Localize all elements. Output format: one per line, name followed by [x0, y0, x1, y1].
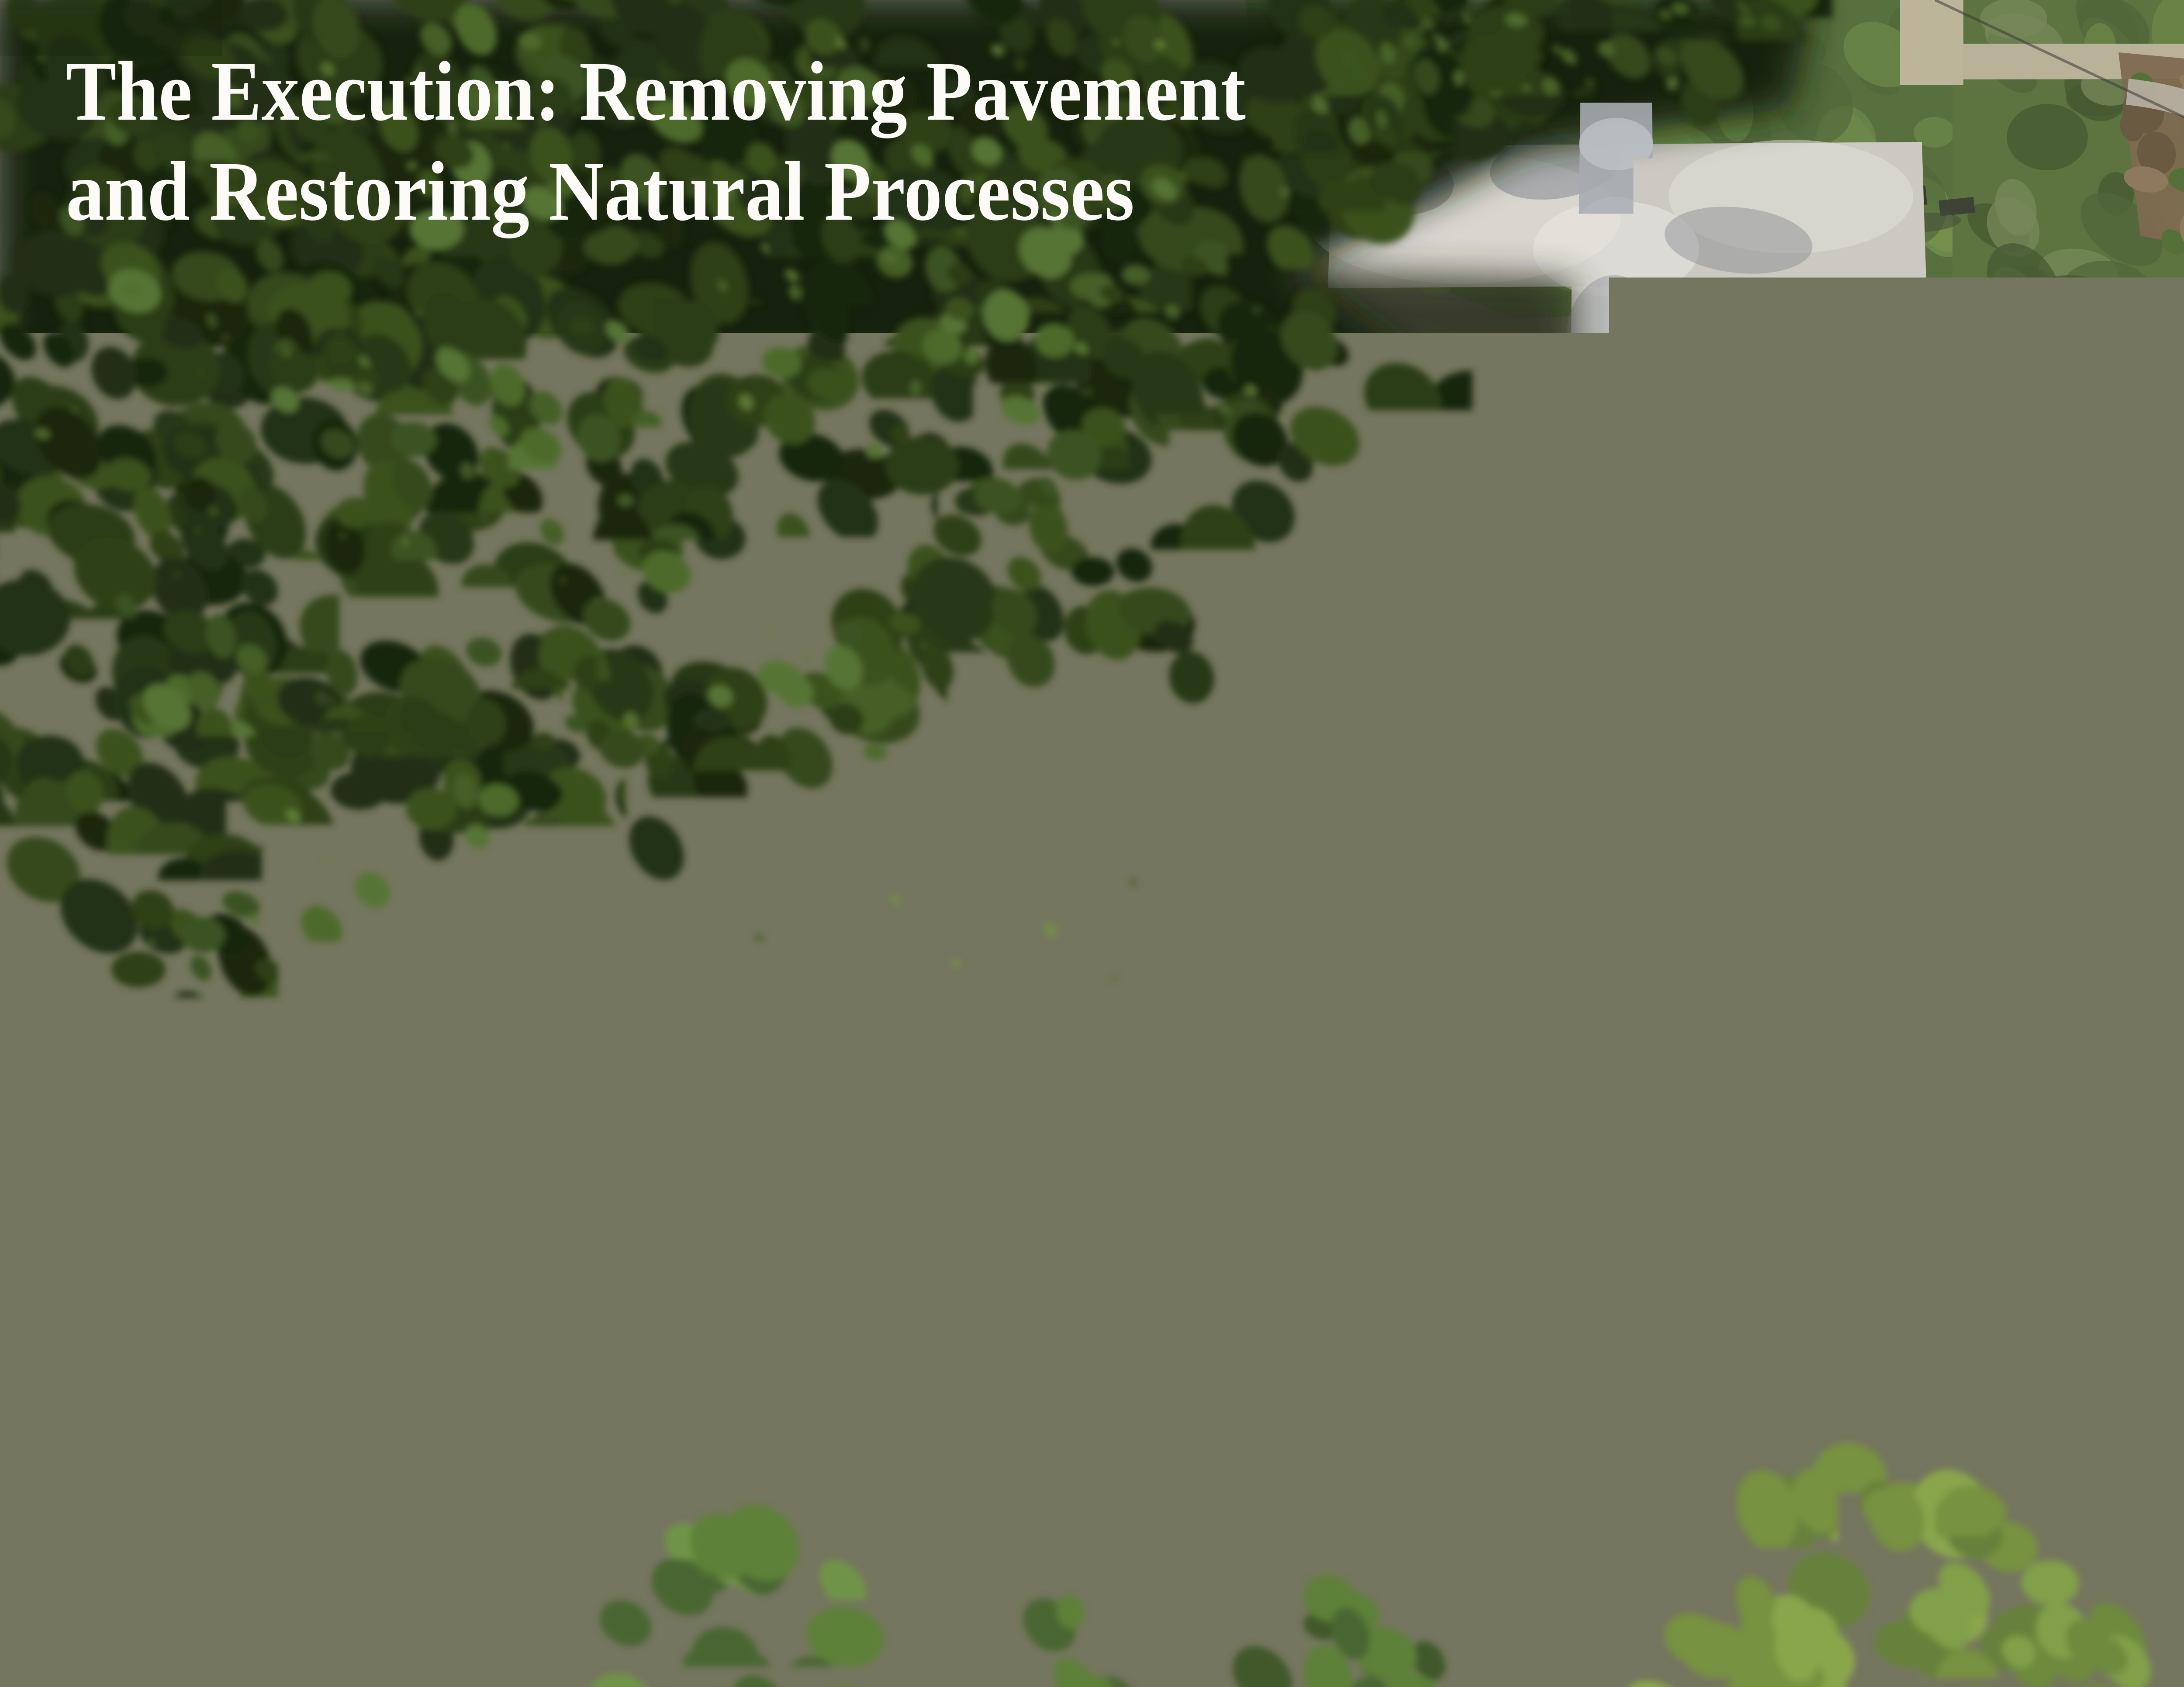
svg-text:The Execution: Removing Paveme: The Execution: Removing Pavement	[66, 44, 1246, 138]
svg-text:and Restoring Natural Processe: and Restoring Natural Processes	[66, 144, 1134, 238]
